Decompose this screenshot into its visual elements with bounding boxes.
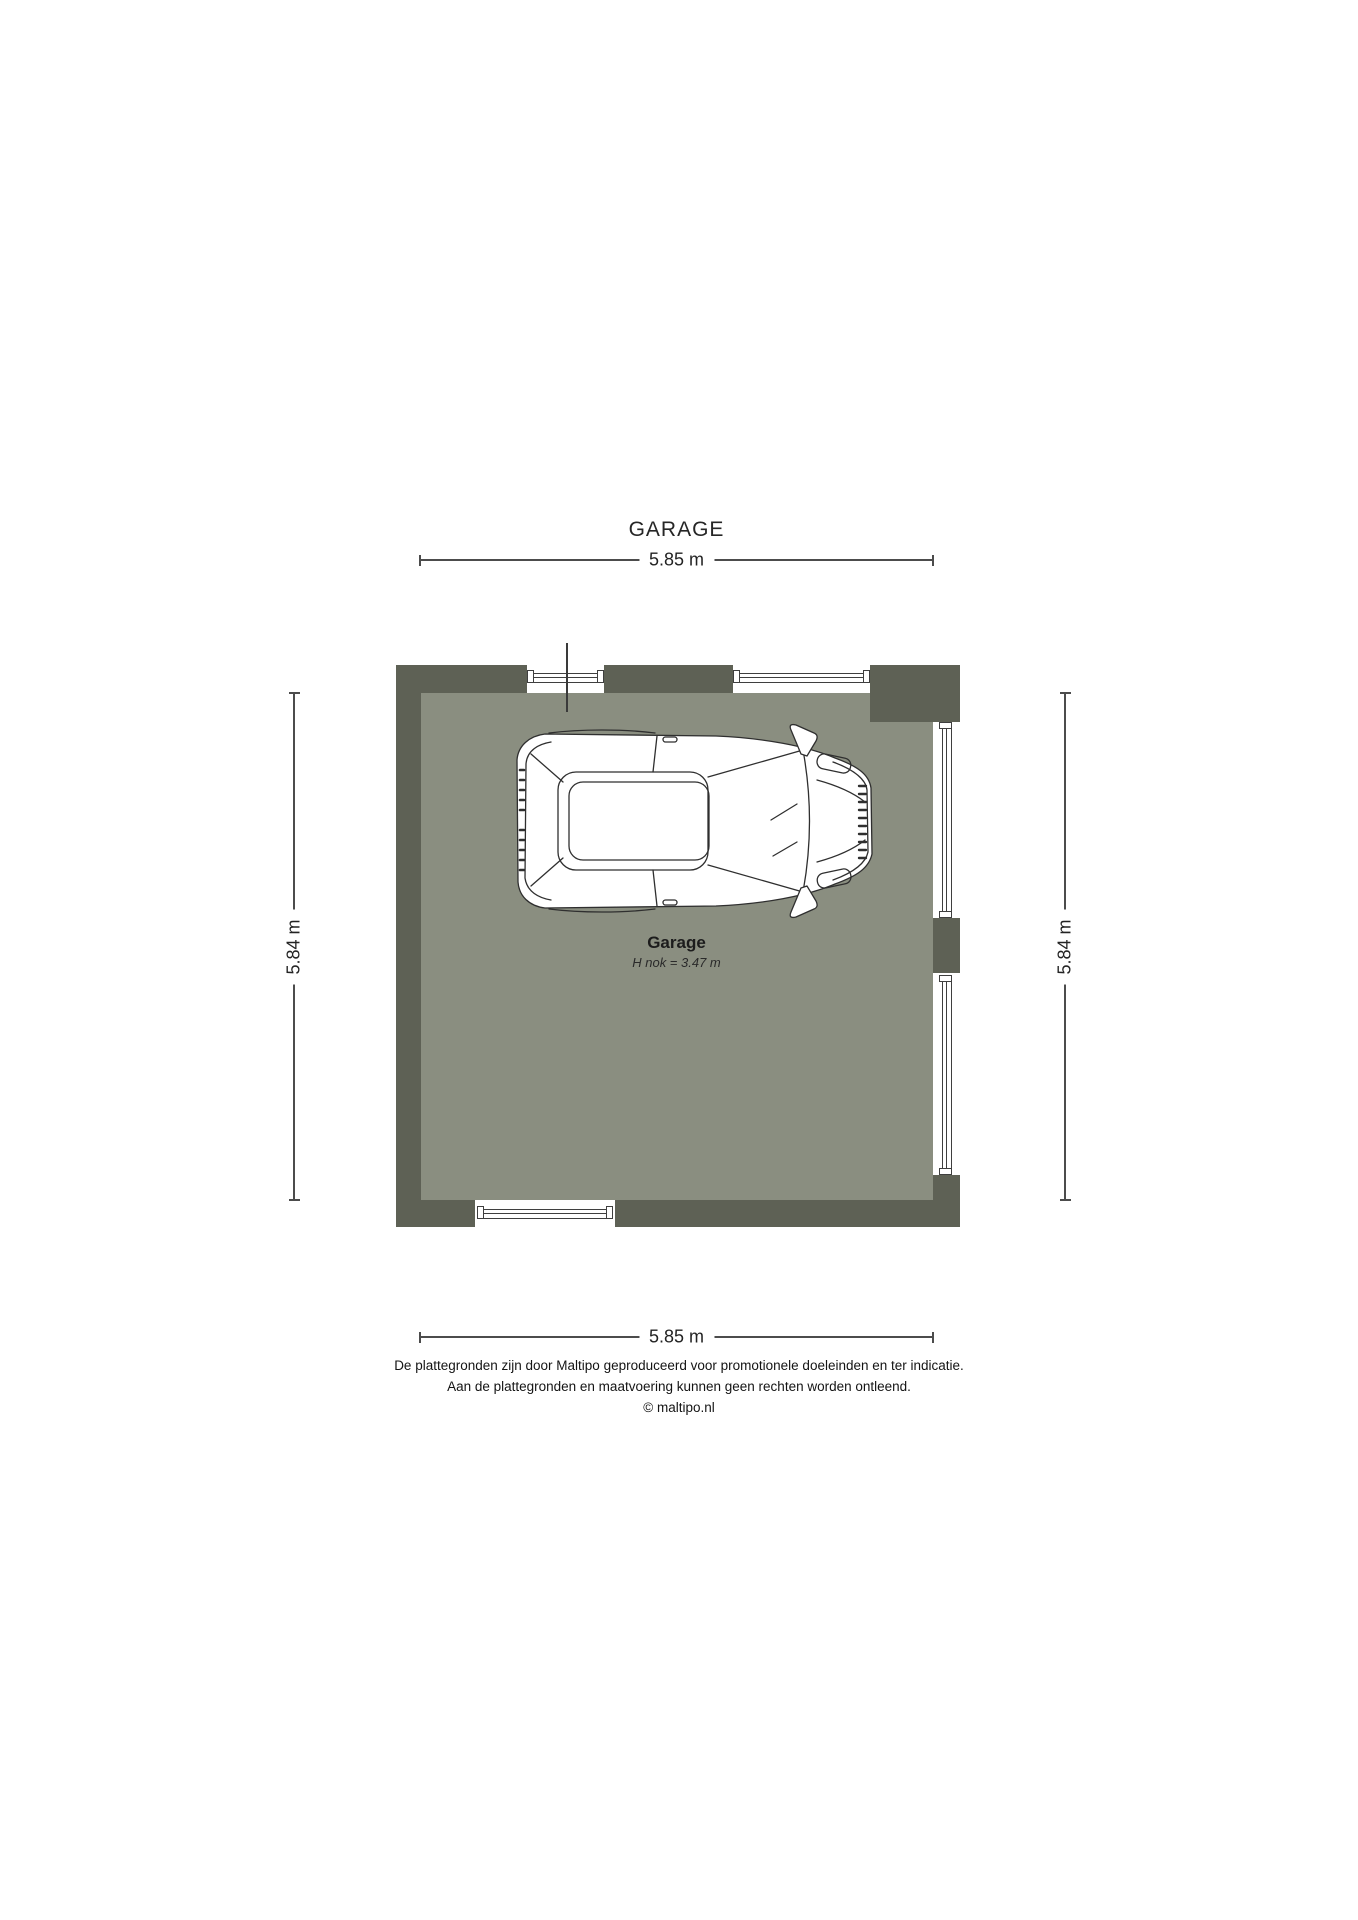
window-frame-cap: [939, 975, 952, 982]
plan-title: GARAGE: [420, 518, 933, 542]
window-frame-cap: [527, 670, 534, 683]
car-body: [517, 734, 872, 908]
window-glass: [483, 1209, 607, 1219]
wall-segment-top-a: [396, 665, 527, 693]
window-frame-cap: [477, 1206, 484, 1219]
window-bottom: [477, 1200, 613, 1227]
car-roof-rail-top: [549, 730, 655, 733]
wall-segment-bottom-a: [396, 1200, 475, 1227]
window-top-right: [733, 665, 870, 693]
car-roof-rail-bottom: [549, 909, 655, 912]
wall-segment-bottom-b: [615, 1200, 960, 1227]
window-frame-cap: [733, 670, 740, 683]
dimension-label-bottom: 5.85 m: [639, 1326, 714, 1347]
floorplan-canvas: GARAGE 5.85 m: [0, 0, 1358, 1920]
window-frame-cap: [939, 1168, 952, 1175]
room-ridge-height: H nok = 3.47 m: [420, 954, 933, 972]
dimension-label-top: 5.85 m: [639, 549, 714, 570]
window-frame-cap: [863, 670, 870, 683]
window-glass: [739, 673, 864, 683]
footer-disclaimer: De plattegronden zijn door Maltipo gepro…: [339, 1355, 1019, 1418]
window-glass: [942, 728, 952, 912]
room-name: Garage: [420, 932, 933, 954]
footer-line-2: Aan de plattegronden en maatvoering kunn…: [339, 1376, 1019, 1397]
window-frame-cap: [939, 911, 952, 918]
dimension-label-right: 5.84 m: [1054, 909, 1075, 984]
dimension-line-right: 5.84 m: [1064, 693, 1066, 1200]
footer-line-1: De plattegronden zijn door Maltipo gepro…: [339, 1355, 1019, 1376]
car-top-view: [511, 718, 879, 924]
wall-segment-top-right-corner: [870, 665, 960, 722]
dimension-label-left: 5.84 m: [283, 909, 304, 984]
dimension-line-bottom: 5.85 m: [420, 1336, 933, 1338]
window-right-upper: [933, 722, 960, 918]
wall-segment-right-mid: [933, 918, 960, 973]
window-right-lower: [933, 975, 960, 1175]
dimension-line-left: 5.84 m: [293, 693, 295, 1200]
window-frame-cap: [939, 722, 952, 729]
wall-segment-top-b: [604, 665, 733, 693]
section-reference-line: [566, 643, 568, 712]
wall-segment-left: [396, 665, 421, 1227]
window-frame-cap: [606, 1206, 613, 1219]
room-label: Garage H nok = 3.47 m: [420, 932, 933, 972]
window-frame-cap: [597, 670, 604, 683]
footer-line-3: © maltipo.nl: [339, 1397, 1019, 1418]
window-glass: [942, 981, 952, 1169]
dimension-line-top: 5.85 m: [420, 559, 933, 561]
car-illustration: [511, 718, 879, 924]
